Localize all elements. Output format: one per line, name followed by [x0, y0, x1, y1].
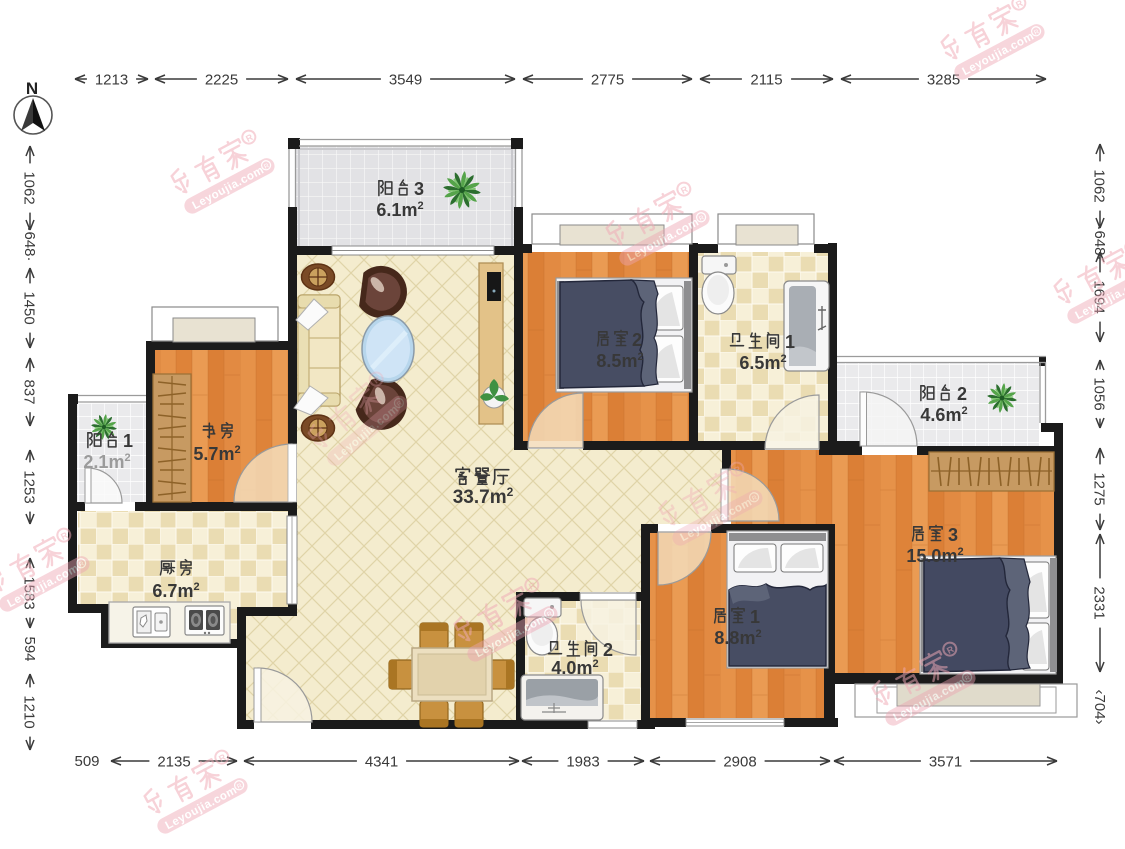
svg-text:3549: 3549 [389, 72, 422, 89]
svg-text:6.1m2: 6.1m2 [376, 200, 423, 220]
svg-text:2908: 2908 [723, 754, 756, 771]
svg-text:4.6m2: 4.6m2 [920, 405, 967, 425]
svg-text:1450: 1450 [21, 291, 38, 324]
svg-text:2: 2 [632, 330, 642, 350]
svg-text:1983: 1983 [566, 754, 599, 771]
svg-text:509: 509 [74, 753, 99, 770]
svg-text:2775: 2775 [591, 72, 624, 89]
svg-text:1210: 1210 [21, 695, 38, 728]
svg-text:3: 3 [414, 179, 424, 199]
svg-text:‹704›: ‹704› [1091, 689, 1108, 724]
svg-text:1: 1 [750, 607, 760, 627]
svg-text:594: 594 [21, 636, 38, 661]
svg-text:3: 3 [948, 525, 958, 545]
svg-text:3571: 3571 [929, 754, 962, 771]
svg-text:1: 1 [123, 431, 133, 451]
svg-text:2115: 2115 [750, 72, 782, 89]
svg-text:1062: 1062 [1091, 169, 1108, 202]
svg-text:2225: 2225 [205, 72, 238, 89]
svg-text:2135: 2135 [157, 754, 190, 771]
svg-text:1056: 1056 [1091, 377, 1108, 410]
svg-text:·648·: ·648· [21, 226, 38, 261]
svg-text:15.0m2: 15.0m2 [906, 546, 963, 566]
svg-text:N: N [26, 79, 38, 98]
svg-text:4341: 4341 [365, 754, 398, 771]
svg-text:8.8m2: 8.8m2 [714, 628, 761, 648]
svg-text:1253: 1253 [21, 470, 38, 503]
svg-text:2331: 2331 [1091, 586, 1108, 619]
svg-text:6.5m2: 6.5m2 [739, 353, 786, 373]
svg-text:4.0m2: 4.0m2 [551, 658, 598, 678]
svg-text:1275: 1275 [1091, 472, 1108, 505]
svg-text:1: 1 [785, 332, 795, 352]
svg-text:5.7m2: 5.7m2 [193, 444, 240, 464]
svg-text:1062: 1062 [21, 171, 38, 204]
svg-text:2: 2 [603, 640, 613, 660]
svg-text:1213: 1213 [95, 72, 128, 89]
svg-text:837: 837 [21, 379, 38, 404]
svg-text:6.7m2: 6.7m2 [152, 581, 199, 601]
svg-text:33.7m2: 33.7m2 [453, 485, 514, 508]
svg-text:8.5m2: 8.5m2 [596, 351, 643, 371]
svg-text:2: 2 [957, 384, 967, 404]
svg-text:2.1m2: 2.1m2 [83, 452, 130, 472]
